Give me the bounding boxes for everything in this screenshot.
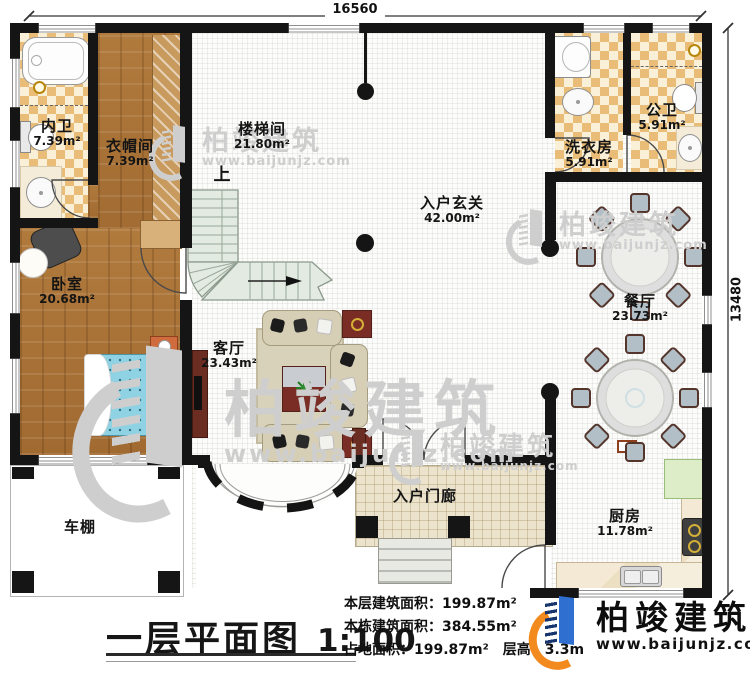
range-hood-icon bbox=[617, 440, 637, 453]
wall-stub bbox=[545, 397, 556, 455]
wall-bedroom-right bbox=[180, 300, 192, 455]
stair-direction-label: 上 bbox=[210, 166, 234, 185]
wall-porch-top bbox=[465, 455, 556, 465]
dimension-top: 16560 bbox=[325, 2, 385, 17]
brand-name: 柏竣建筑 bbox=[596, 601, 750, 636]
bed-bench bbox=[158, 358, 176, 394]
exterior-ground bbox=[196, 465, 356, 598]
carport-column bbox=[158, 467, 180, 479]
wall-laundry-left bbox=[545, 33, 555, 138]
round-rug bbox=[18, 248, 48, 278]
room-label-dining: 餐厅23.73m² bbox=[600, 293, 680, 323]
sofa-top bbox=[262, 310, 342, 346]
carport-column bbox=[158, 571, 180, 593]
tv bbox=[194, 376, 202, 410]
window bbox=[38, 23, 96, 33]
pillow bbox=[339, 376, 357, 394]
column bbox=[541, 383, 559, 401]
title-underline bbox=[106, 653, 356, 662]
lamp-icon bbox=[158, 436, 171, 449]
porch-steps bbox=[378, 538, 452, 584]
wall-stub bbox=[545, 182, 556, 240]
room-label-carport: 车棚 bbox=[40, 519, 120, 536]
column bbox=[357, 83, 374, 100]
column bbox=[541, 239, 559, 257]
side-table bbox=[342, 310, 372, 338]
floor-plan-canvas: 柏竣建筑 www.baijunjz.com 柏竣建筑 www.baijunjz.… bbox=[0, 0, 750, 673]
washing-machine bbox=[549, 36, 591, 78]
pillow bbox=[339, 351, 356, 368]
room-label-porch: 入户门廊 bbox=[365, 488, 485, 505]
burner-icon bbox=[688, 524, 701, 537]
shower-partition bbox=[631, 66, 702, 67]
bathtub-drain bbox=[31, 55, 42, 66]
bed-blanket bbox=[84, 354, 112, 436]
pillow bbox=[293, 318, 308, 333]
room-label-laundry: 洗衣房5.91m² bbox=[549, 139, 629, 169]
room-label-inner-bath: 内卫7.39m² bbox=[16, 118, 98, 148]
sofa-bottom bbox=[262, 424, 344, 462]
room-label-cloakroom: 衣帽间7.39m² bbox=[90, 138, 170, 168]
washer-drum bbox=[562, 42, 590, 72]
shower-partition bbox=[20, 105, 88, 106]
shower-head-icon bbox=[688, 44, 701, 57]
brand-block: 柏竣建筑 www.baijunjz.com bbox=[528, 597, 750, 657]
column bbox=[356, 234, 374, 252]
carport-column bbox=[12, 571, 34, 593]
pillow bbox=[318, 434, 334, 450]
shoe-cabinet bbox=[352, 428, 366, 456]
wall-bay-end bbox=[198, 455, 210, 468]
cloakroom-bench bbox=[140, 220, 182, 249]
window bbox=[583, 23, 625, 33]
dimension-right: 13480 bbox=[730, 270, 745, 330]
bed-bench bbox=[158, 394, 176, 430]
laundry-sink bbox=[562, 88, 594, 116]
sink-basin bbox=[642, 570, 659, 584]
wall-laundry-bottom bbox=[545, 172, 712, 182]
wall-cloakroom-right bbox=[180, 33, 192, 248]
pillow bbox=[340, 402, 355, 417]
room-label-public-bath: 公卫5.91m² bbox=[622, 102, 702, 132]
sink-basin bbox=[624, 570, 641, 584]
refrigerator bbox=[664, 459, 704, 499]
kitchen-sink bbox=[620, 566, 662, 587]
window bbox=[10, 262, 20, 314]
carport-column bbox=[12, 467, 34, 479]
window bbox=[10, 358, 20, 414]
room-label-stairwell: 楼梯间21.80m² bbox=[212, 121, 312, 151]
porch-column bbox=[448, 516, 470, 538]
burner-icon bbox=[688, 540, 701, 553]
brand-url: www.baijunjz.com bbox=[596, 635, 750, 653]
pillow bbox=[316, 318, 333, 335]
window bbox=[702, 295, 712, 325]
room-label-foyer: 入户玄关42.00m² bbox=[392, 195, 512, 225]
pillow bbox=[270, 318, 286, 334]
public-bath-sink bbox=[678, 134, 702, 162]
bathtub bbox=[22, 37, 90, 85]
sofa-right bbox=[330, 344, 368, 428]
bed bbox=[84, 354, 158, 436]
brand-logo-icon bbox=[528, 597, 586, 657]
window bbox=[702, 372, 712, 408]
wall-bathroom-bottom bbox=[10, 218, 98, 228]
pillow bbox=[272, 434, 287, 449]
coffee-table bbox=[282, 366, 326, 412]
door-threshold bbox=[88, 185, 98, 218]
wall-kitchen-left bbox=[545, 455, 556, 545]
room-label-living: 客厅23.43m² bbox=[188, 340, 270, 370]
shower-head-icon bbox=[33, 81, 46, 94]
column-line bbox=[364, 33, 367, 83]
bathroom-sink bbox=[26, 177, 56, 208]
window bbox=[652, 23, 690, 33]
room-label-kitchen: 厨房11.78m² bbox=[585, 508, 665, 538]
porch-column bbox=[356, 516, 378, 538]
window bbox=[288, 23, 360, 33]
wall-bay-end bbox=[352, 455, 364, 468]
stove bbox=[682, 518, 704, 556]
window bbox=[10, 58, 20, 108]
room-label-bedroom: 卧室20.68m² bbox=[26, 276, 108, 306]
pillow bbox=[295, 434, 310, 449]
window bbox=[38, 455, 148, 465]
lamp-icon bbox=[158, 340, 171, 353]
